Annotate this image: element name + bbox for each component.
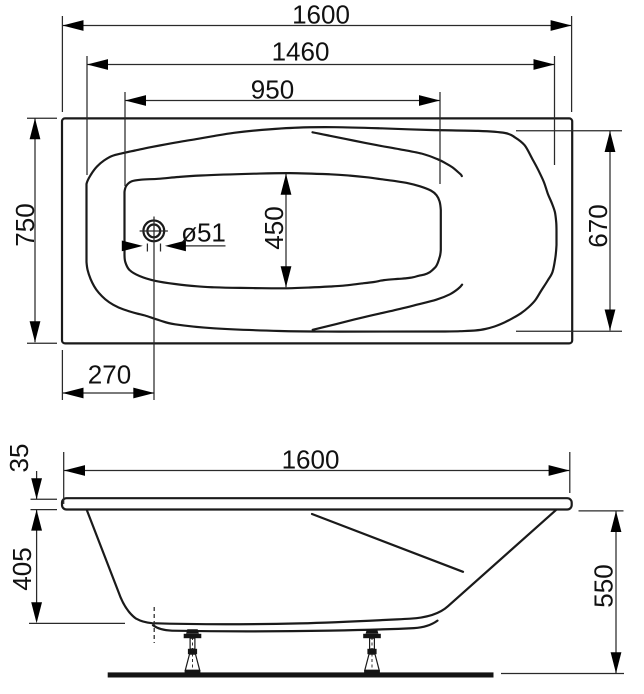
svg-text:550: 550 — [589, 564, 619, 607]
svg-text:1600: 1600 — [282, 445, 340, 475]
svg-text:670: 670 — [583, 204, 613, 247]
svg-text:35: 35 — [4, 444, 34, 473]
svg-text:950: 950 — [251, 75, 294, 105]
svg-text:750: 750 — [10, 203, 40, 246]
svg-text:405: 405 — [7, 547, 37, 590]
svg-text:450: 450 — [259, 206, 289, 249]
svg-text:1460: 1460 — [272, 37, 330, 67]
svg-text:270: 270 — [88, 360, 131, 390]
svg-text:1600: 1600 — [292, 0, 350, 30]
svg-text:ø51: ø51 — [181, 218, 226, 248]
